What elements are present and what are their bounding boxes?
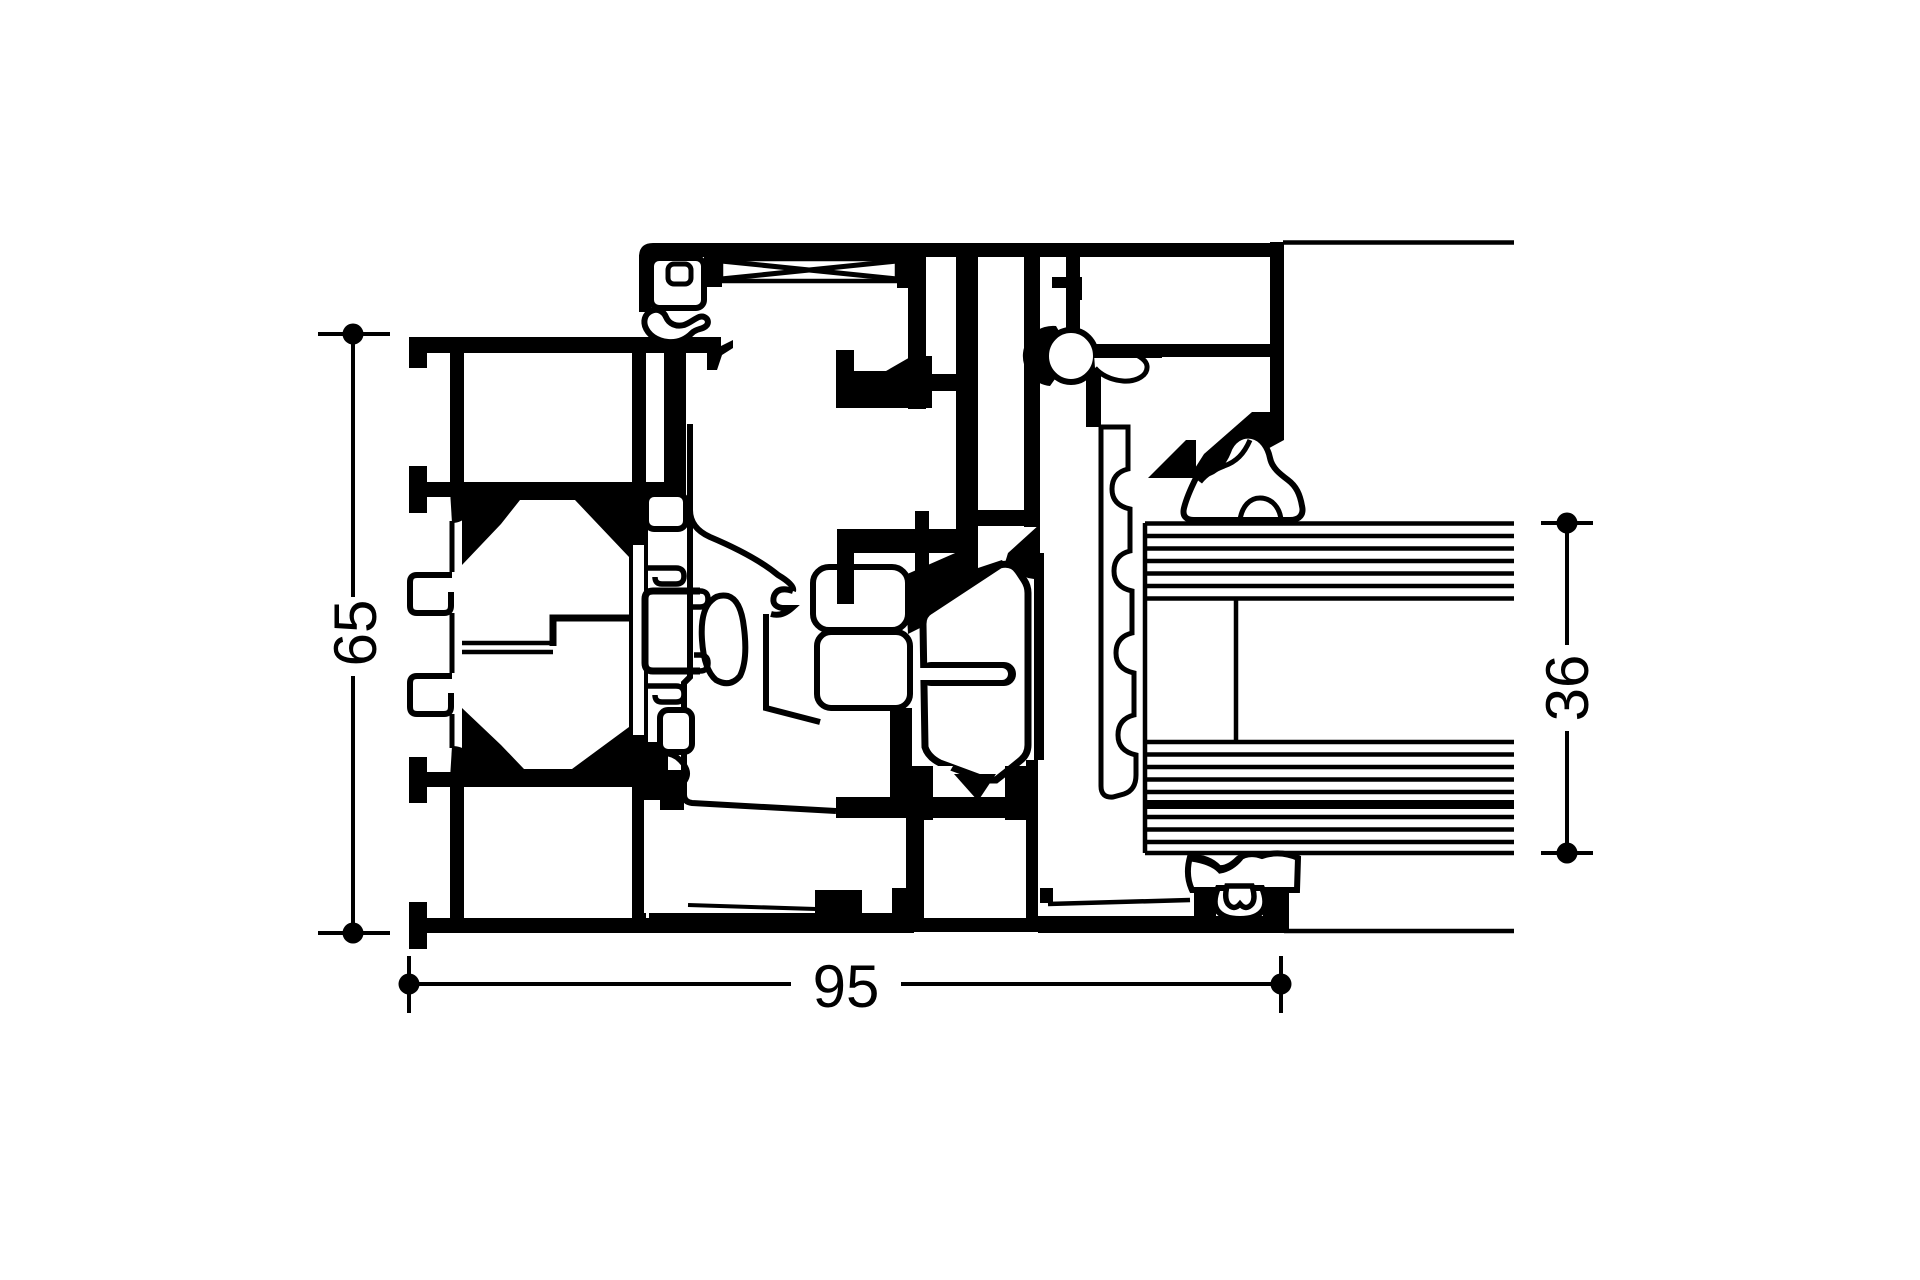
svg-text:65: 65 <box>322 600 389 667</box>
svg-text:95: 95 <box>813 953 880 1020</box>
svg-text:36: 36 <box>1534 655 1601 722</box>
